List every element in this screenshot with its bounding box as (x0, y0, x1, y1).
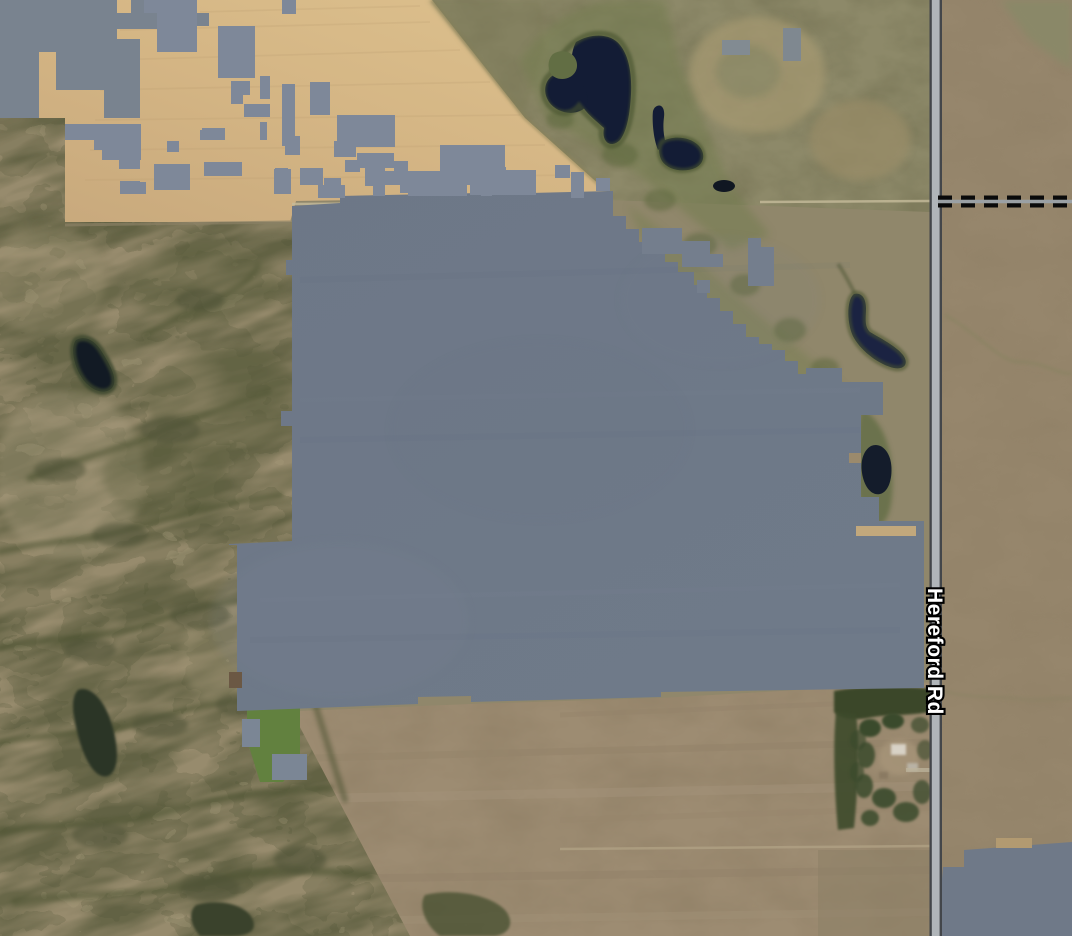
svg-text:Hereford Rd: Hereford Rd (923, 588, 946, 715)
